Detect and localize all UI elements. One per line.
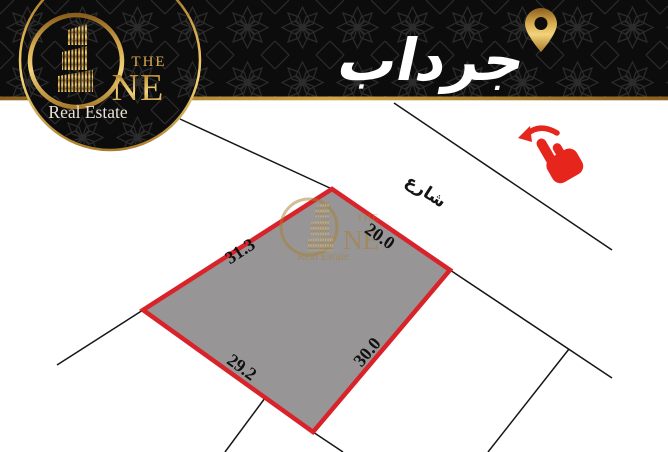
flyer-canvas: THE NE Real Estate 31.3 20.0 29.2 30.0 ش… bbox=[0, 0, 668, 452]
watermark-subtitle: Real Estate bbox=[297, 251, 349, 263]
logo-subtitle: Real Estate bbox=[48, 102, 127, 122]
location-title: جرداب bbox=[332, 27, 532, 95]
